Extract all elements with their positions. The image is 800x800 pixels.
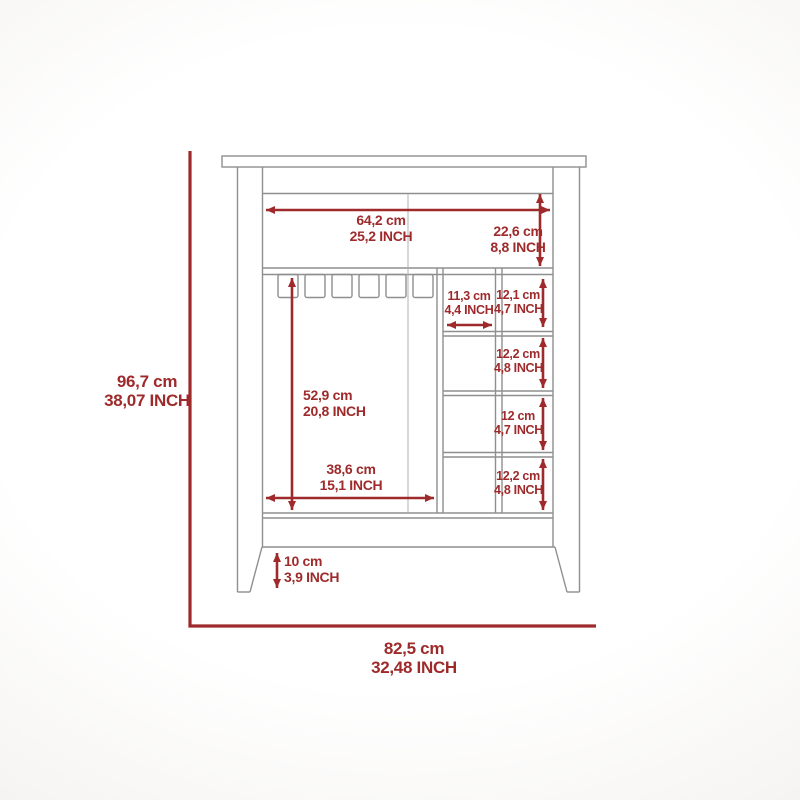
furniture-dimension-diagram: 96,7 cm 38,07 INCH 82,5 cm 32,48 INCH 64… [0, 0, 800, 800]
dim-value-cm: 12,2 cm [494, 347, 542, 361]
rack-channel [305, 275, 325, 298]
dim-label-overall-width: 82,5 cm 32,48 INCH [344, 639, 484, 677]
dim-label-center-cubby-width: 11,3 cm 4,4 INCH [441, 289, 497, 317]
dim-value-inch: 8,8 INCH [478, 240, 558, 256]
dim-value-inch: 20,8 INCH [303, 404, 383, 420]
dim-label-cubby-row2: 12,2 cm 4,8 INCH [494, 347, 542, 375]
stemware-rack [278, 275, 433, 298]
dim-value-inch: 4,7 INCH [494, 302, 542, 316]
rack-channel [386, 275, 406, 298]
dim-value-cm: 82,5 cm [344, 639, 484, 658]
dim-value-cm: 12,1 cm [494, 288, 542, 302]
rack-channel [332, 275, 352, 298]
dim-value-inch: 4,7 INCH [494, 423, 542, 437]
dim-label-top-section-height: 22,6 cm 8,8 INCH [478, 224, 558, 255]
dim-label-overall-height: 96,7 cm 38,07 INCH [92, 372, 202, 410]
dim-value-inch: 4,8 INCH [494, 483, 542, 497]
dim-value-cm: 96,7 cm [92, 372, 202, 391]
dim-value-cm: 11,3 cm [441, 289, 497, 303]
dim-value-cm: 12 cm [494, 409, 542, 423]
countertop [222, 156, 586, 167]
dim-value-cm: 22,6 cm [478, 224, 558, 240]
dim-value-inch: 32,48 INCH [344, 658, 484, 677]
dim-value-cm: 64,2 cm [321, 213, 441, 229]
dim-value-cm: 10 cm [284, 554, 354, 570]
dim-value-inch: 25,2 INCH [321, 229, 441, 245]
rack-channel [413, 275, 433, 298]
dim-label-leg-height: 10 cm 3,9 INCH [284, 554, 354, 585]
dim-label-compartment-height: 52,9 cm 20,8 INCH [303, 388, 383, 419]
dim-label-cubby-row4: 12,2 cm 4,8 INCH [494, 469, 542, 497]
dim-value-inch: 15,1 INCH [306, 478, 396, 494]
dim-value-inch: 4,8 INCH [494, 361, 542, 375]
dim-value-inch: 4,4 INCH [441, 303, 497, 317]
dim-value-cm: 38,6 cm [306, 462, 396, 478]
dim-label-compartment-width: 38,6 cm 15,1 INCH [306, 462, 396, 493]
dim-value-inch: 3,9 INCH [284, 570, 354, 586]
dim-label-top-opening-width: 64,2 cm 25,2 INCH [321, 213, 441, 244]
rack-channel [278, 275, 298, 298]
right-leg-taper [555, 547, 567, 592]
left-leg-taper [250, 547, 262, 592]
dim-value-cm: 12,2 cm [494, 469, 542, 483]
rack-channel [359, 275, 379, 298]
dim-value-cm: 52,9 cm [303, 388, 383, 404]
dim-label-cubby-row1: 12,1 cm 4,7 INCH [494, 288, 542, 316]
dim-label-cubby-row3: 12 cm 4,7 INCH [494, 409, 542, 437]
dim-value-inch: 38,07 INCH [92, 391, 202, 410]
